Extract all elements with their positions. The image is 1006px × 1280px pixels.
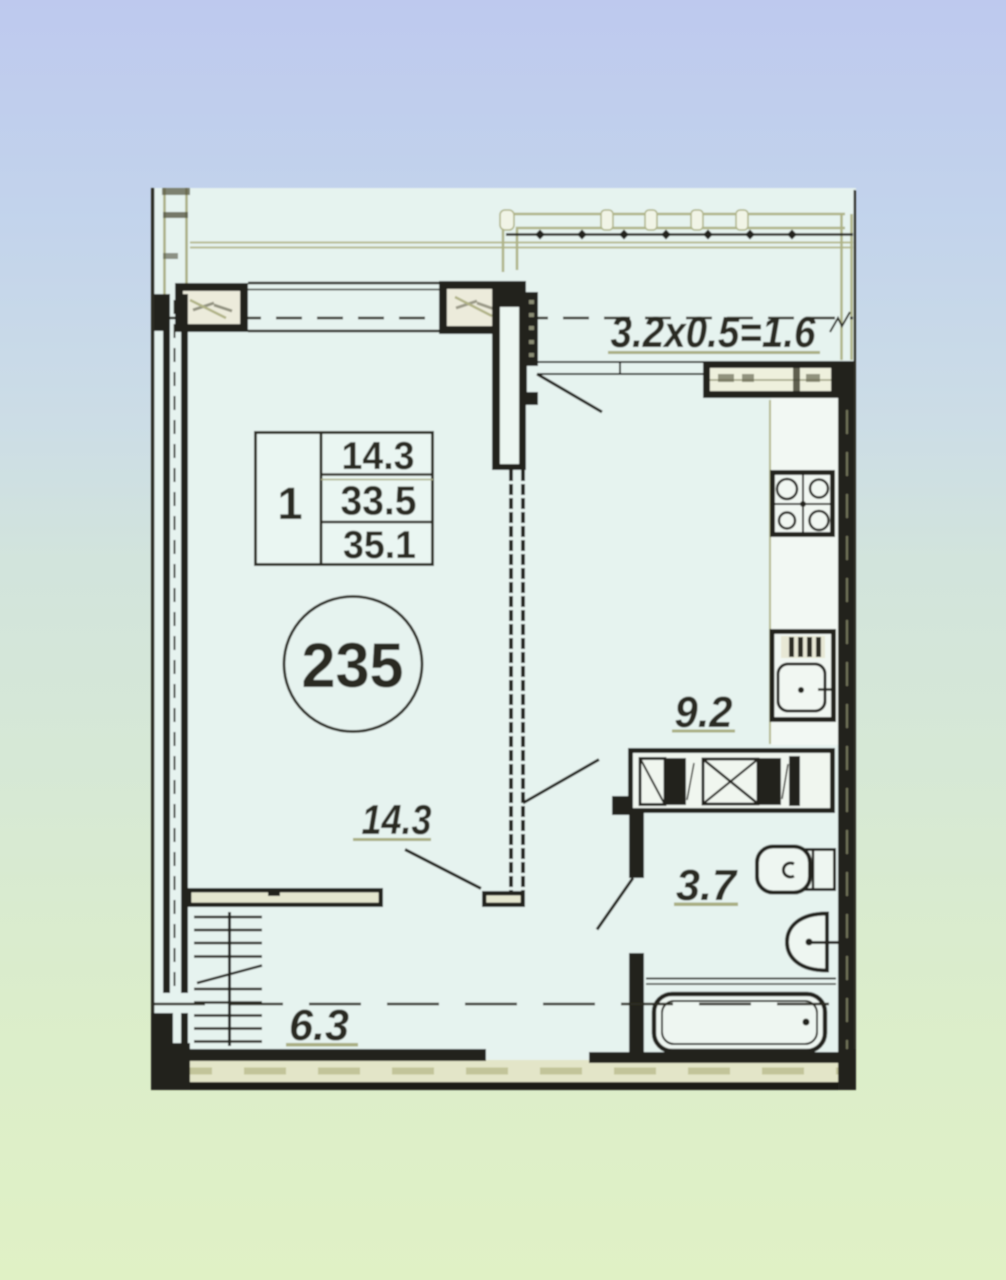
svg-text:3.2x0.5=1.6: 3.2x0.5=1.6	[611, 308, 816, 357]
svg-text:1: 1	[277, 478, 302, 529]
svg-text:35.1: 35.1	[343, 524, 416, 567]
svg-text:14.3: 14.3	[342, 435, 415, 478]
svg-text:14.3: 14.3	[362, 796, 432, 843]
svg-text:6.3: 6.3	[289, 1001, 349, 1050]
svg-text:235: 235	[302, 631, 404, 701]
svg-text:33.5: 33.5	[341, 478, 417, 524]
